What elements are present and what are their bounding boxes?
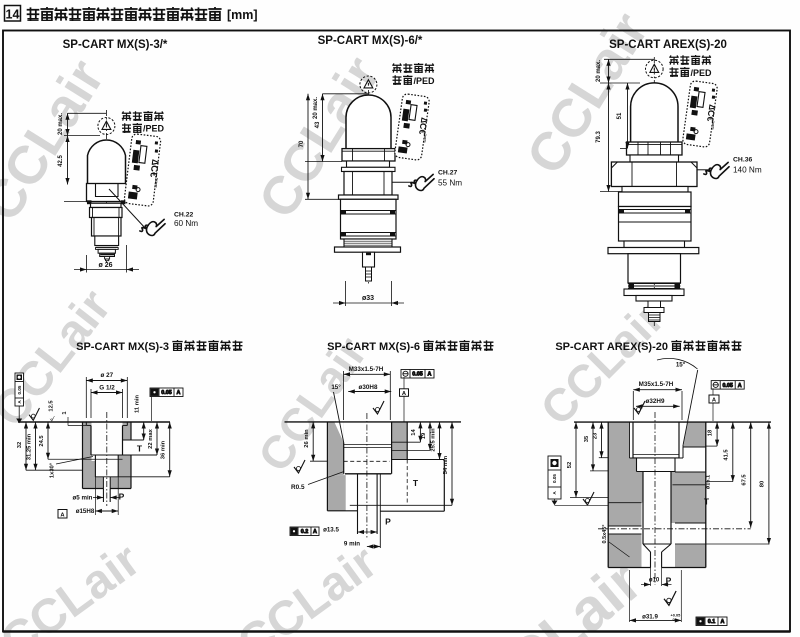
svg-text:0.05: 0.05 <box>412 372 423 378</box>
svg-text:0.05: 0.05 <box>17 385 22 394</box>
svg-text:42.5: 42.5 <box>58 155 64 167</box>
svg-text:60 Nm: 60 Nm <box>174 219 198 228</box>
svg-text:9 min: 9 min <box>344 541 360 548</box>
svg-text:0.2: 0.2 <box>301 529 309 535</box>
svg-text:32: 32 <box>17 442 23 448</box>
svg-text:12.5: 12.5 <box>49 400 55 412</box>
svg-text:67.5: 67.5 <box>741 474 747 486</box>
svg-text:14: 14 <box>6 8 20 22</box>
svg-text:70: 70 <box>299 140 305 147</box>
svg-text:G 1/2: G 1/2 <box>99 385 115 392</box>
svg-text:140 Nm: 140 Nm <box>733 166 762 175</box>
svg-text:20 max.: 20 max. <box>596 60 602 82</box>
svg-text:T: T <box>704 497 710 507</box>
svg-text:20 max.: 20 max. <box>313 97 319 119</box>
svg-text:[mm]: [mm] <box>227 8 258 22</box>
svg-text:0.5x45°: 0.5x45° <box>602 524 608 543</box>
svg-text:55 Nm: 55 Nm <box>438 179 462 188</box>
svg-text:24.5: 24.5 <box>39 435 45 447</box>
svg-text:0.1: 0.1 <box>708 619 716 625</box>
svg-text:19: 19 <box>421 432 427 439</box>
svg-text:15°: 15° <box>676 362 686 369</box>
svg-text:SP-CART MX(S)-6: SP-CART MX(S)-6 <box>327 341 420 353</box>
svg-text:SP-CART MX(S)-6/*: SP-CART MX(S)-6/* <box>318 35 423 47</box>
svg-text:ø 27: ø 27 <box>100 372 113 379</box>
svg-text:80: 80 <box>760 481 766 487</box>
svg-text:SP-CART MX(S)-3: SP-CART MX(S)-3 <box>76 341 169 353</box>
svg-text:14: 14 <box>411 429 417 436</box>
svg-text:A: A <box>428 372 432 378</box>
svg-text:/PED: /PED <box>143 124 165 134</box>
svg-text:15°: 15° <box>331 384 341 391</box>
svg-text:P: P <box>385 517 391 527</box>
svg-text:22 max: 22 max <box>148 428 154 448</box>
svg-text:≈≈≈: ≈≈≈ <box>420 133 427 143</box>
svg-text:ø31.9: ø31.9 <box>642 614 658 621</box>
svg-text:≈≈≈: ≈≈≈ <box>708 120 715 130</box>
svg-text:P: P <box>666 576 672 586</box>
svg-text:A: A <box>738 383 742 389</box>
svg-text:≈≈≈: ≈≈≈ <box>151 177 158 188</box>
svg-text:0: 0 <box>673 617 675 622</box>
svg-text:43: 43 <box>315 121 321 128</box>
svg-text:ø 26: ø 26 <box>98 262 112 269</box>
svg-text:54 min: 54 min <box>443 455 449 474</box>
svg-text:ø32H9: ø32H9 <box>646 398 665 405</box>
svg-text:0.05: 0.05 <box>722 383 733 389</box>
svg-text:CH.22: CH.22 <box>174 212 193 219</box>
svg-text:0.05: 0.05 <box>552 474 557 483</box>
svg-text:T: T <box>137 444 143 454</box>
svg-text:M33x1.5-7H: M33x1.5-7H <box>349 366 384 373</box>
svg-text:SP-CART AREX(S)-20: SP-CART AREX(S)-20 <box>555 341 668 353</box>
svg-text:52: 52 <box>567 462 573 468</box>
svg-text:ø5 min: ø5 min <box>73 495 93 502</box>
svg-text:1x30°: 1x30° <box>50 462 56 478</box>
svg-text:79.3: 79.3 <box>596 131 602 143</box>
svg-text:ø33: ø33 <box>362 295 374 302</box>
svg-text:41.5: 41.5 <box>723 449 729 461</box>
svg-text:A: A <box>313 529 317 535</box>
svg-text:ø13.5: ø13.5 <box>323 527 339 534</box>
svg-text:ø30H8: ø30H8 <box>359 384 378 391</box>
svg-text:CH.36: CH.36 <box>733 157 752 164</box>
svg-text:25.5 min: 25.5 min <box>430 428 436 452</box>
svg-text:R0.5: R0.5 <box>291 484 305 491</box>
svg-text:A: A <box>721 619 725 625</box>
svg-text:SP-CART MX(S)-3/*: SP-CART MX(S)-3/* <box>63 39 168 51</box>
svg-text:ø15H8: ø15H8 <box>76 508 95 515</box>
svg-text:P: P <box>119 492 125 502</box>
svg-text:T: T <box>413 478 419 488</box>
svg-text:/PED: /PED <box>691 68 713 78</box>
svg-text:20 max.: 20 max. <box>58 113 64 135</box>
svg-text:35: 35 <box>584 435 590 442</box>
svg-text:51: 51 <box>617 112 623 119</box>
svg-text:11 min: 11 min <box>134 395 140 414</box>
svg-text:A: A <box>177 390 181 396</box>
svg-text:/PED: /PED <box>414 76 436 86</box>
svg-text:0.05: 0.05 <box>161 390 172 396</box>
svg-text:SP-CART AREX(S)-20: SP-CART AREX(S)-20 <box>609 39 727 51</box>
svg-text:36 min: 36 min <box>160 440 166 459</box>
svg-text:31.25 min: 31.25 min <box>26 433 32 460</box>
svg-text:ø10: ø10 <box>649 578 660 584</box>
svg-text:26 min: 26 min <box>304 429 310 448</box>
svg-text:18: 18 <box>708 429 714 436</box>
svg-text:∆C€: ∆C€ <box>147 159 160 179</box>
svg-text:CH.27: CH.27 <box>438 170 457 177</box>
svg-text:M35x1.5-7H: M35x1.5-7H <box>639 381 674 388</box>
svg-text:ø16.1: ø16.1 <box>706 475 712 489</box>
